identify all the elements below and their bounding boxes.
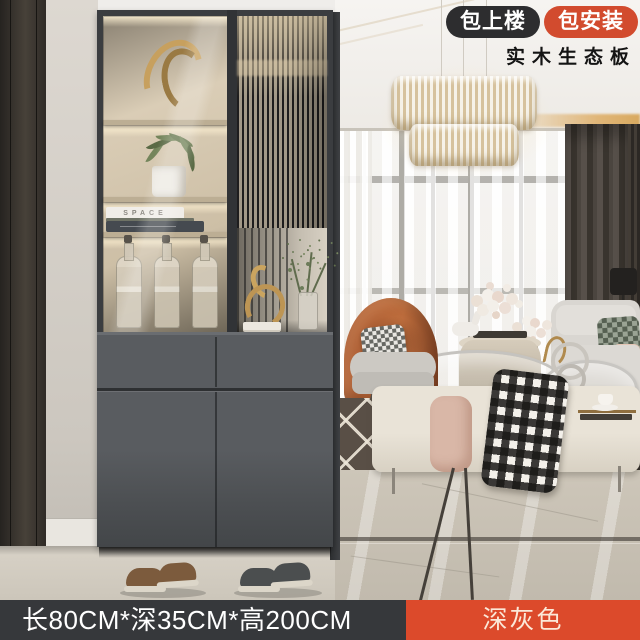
cabinet-center-frame <box>227 10 237 332</box>
fluted-glass-glow <box>237 16 327 228</box>
glass-vase <box>298 292 318 330</box>
floor-reflection <box>335 470 640 600</box>
gingham-throw-blanket <box>480 368 570 494</box>
table-books <box>473 331 527 338</box>
promo-badges: 包上楼 包安装 <box>446 6 638 38</box>
sculpture-base <box>243 322 281 330</box>
blush-lounge-chair <box>430 396 472 472</box>
flower-arrangement <box>487 300 499 312</box>
color-name-tag: 深灰色 <box>406 600 640 640</box>
olive-leaves <box>288 268 292 272</box>
door-seam <box>36 0 37 546</box>
flower-decor <box>526 326 536 336</box>
wall <box>46 0 98 546</box>
badge-installation: 包安装 <box>544 6 638 38</box>
drawer-divider <box>215 337 217 387</box>
dark-shoe <box>271 562 310 585</box>
footer-bar: 长80CM*深35CM*高200CM 深灰色 <box>0 600 640 640</box>
saucer <box>592 404 618 411</box>
cabinet-under-shadow <box>99 547 331 558</box>
dimensions-label: 长80CM*深35CM*高200CM <box>0 600 406 640</box>
floor-seam-highlight <box>335 543 640 544</box>
bench-leg <box>392 468 395 494</box>
material-label: 实木生态板 <box>506 42 636 69</box>
brown-shoe <box>157 562 196 585</box>
badge-carry-upstairs: 包上楼 <box>446 6 540 38</box>
chandelier-upper-tier <box>391 76 537 130</box>
product-photo: SPACE 包上楼 包安装 实木生态板 长80CM*深35CM*高200CM 深… <box>0 0 640 640</box>
door-seam <box>10 0 11 546</box>
door-divider <box>215 392 217 547</box>
glass-reflection <box>103 16 229 334</box>
entry-door-panel <box>0 0 46 546</box>
chandelier-wire <box>441 0 442 78</box>
bench-leg <box>618 466 621 492</box>
handle-groove <box>97 388 333 391</box>
table-lamp <box>610 268 637 295</box>
baseboard <box>46 518 98 547</box>
chandelier-lower-tier <box>409 124 519 166</box>
floor-seam <box>335 537 640 541</box>
coffee-cup <box>598 394 613 405</box>
bench-books <box>580 414 632 420</box>
